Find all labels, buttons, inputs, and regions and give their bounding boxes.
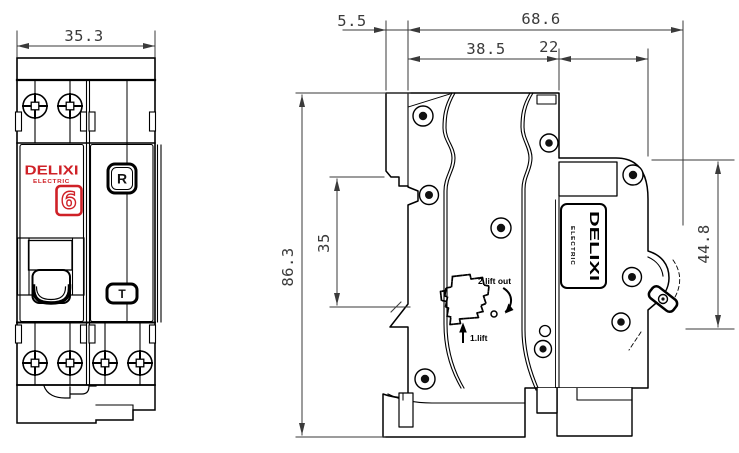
- phillips-screw: [58, 351, 82, 375]
- side-brand-sub-text: ELECTRIC: [569, 226, 575, 266]
- breaker-dimension-drawing: DELIXI ELECTRIC 6 R T: [0, 0, 739, 453]
- dim-front-height-label: 44.8: [695, 224, 713, 263]
- handle-travel-phantom: [673, 260, 680, 297]
- phillips-screw: [58, 94, 82, 118]
- instruction-step2-label: 2.lift out: [478, 276, 511, 286]
- rivet: [623, 165, 643, 185]
- pivot-ring: [540, 326, 551, 337]
- dim-tab-depth-label: 5.5: [337, 12, 367, 30]
- test-button-label: T: [118, 287, 126, 301]
- reset-button: R: [108, 164, 136, 193]
- rivet: [491, 218, 511, 238]
- rivet: [540, 134, 558, 152]
- technical-drawing-canvas: DELIXI ELECTRIC 6 R T: [0, 0, 739, 453]
- spec-label-window: [559, 162, 617, 196]
- side-brand-label: DELIXI ELECTRIC: [561, 204, 606, 288]
- instruction-step1-label: 1.lift: [470, 333, 488, 343]
- phillips-screw: [23, 351, 47, 375]
- dim-total-depth-label: 68.6: [521, 10, 560, 28]
- brand-sub-text: ELECTRIC: [33, 179, 70, 185]
- dim-front-width-label: 35.3: [64, 27, 103, 45]
- test-button: T: [107, 284, 137, 303]
- front-base: [17, 385, 155, 423]
- rivet: [413, 106, 433, 126]
- dim-front-depth-label: 22: [539, 38, 559, 56]
- rivet: [535, 341, 552, 358]
- reset-button-label: R: [117, 171, 127, 187]
- rivet: [623, 268, 642, 287]
- phillips-screw: [23, 94, 47, 118]
- side-brand-text: DELIXI: [587, 211, 602, 281]
- rating-badge-label: 6: [61, 189, 77, 215]
- side-view: DELIXI ELECTRIC: [279, 10, 734, 437]
- dim-total-height-label: 86.3: [279, 247, 297, 286]
- rivet: [612, 313, 630, 331]
- dim-front-width: 35.3: [17, 27, 155, 57]
- rivet: [415, 369, 435, 389]
- brand-logo-text: DELIXI: [25, 163, 79, 178]
- phillips-screw: [128, 351, 152, 375]
- front-view: DELIXI ELECTRIC 6 R T: [16, 27, 162, 423]
- rivet: [420, 186, 439, 205]
- dim-rail-offset-label: 35: [315, 233, 333, 253]
- din-release-tab: [44, 386, 96, 398]
- dim-body-depth-label: 38.5: [466, 40, 505, 58]
- phillips-screw: [93, 351, 117, 375]
